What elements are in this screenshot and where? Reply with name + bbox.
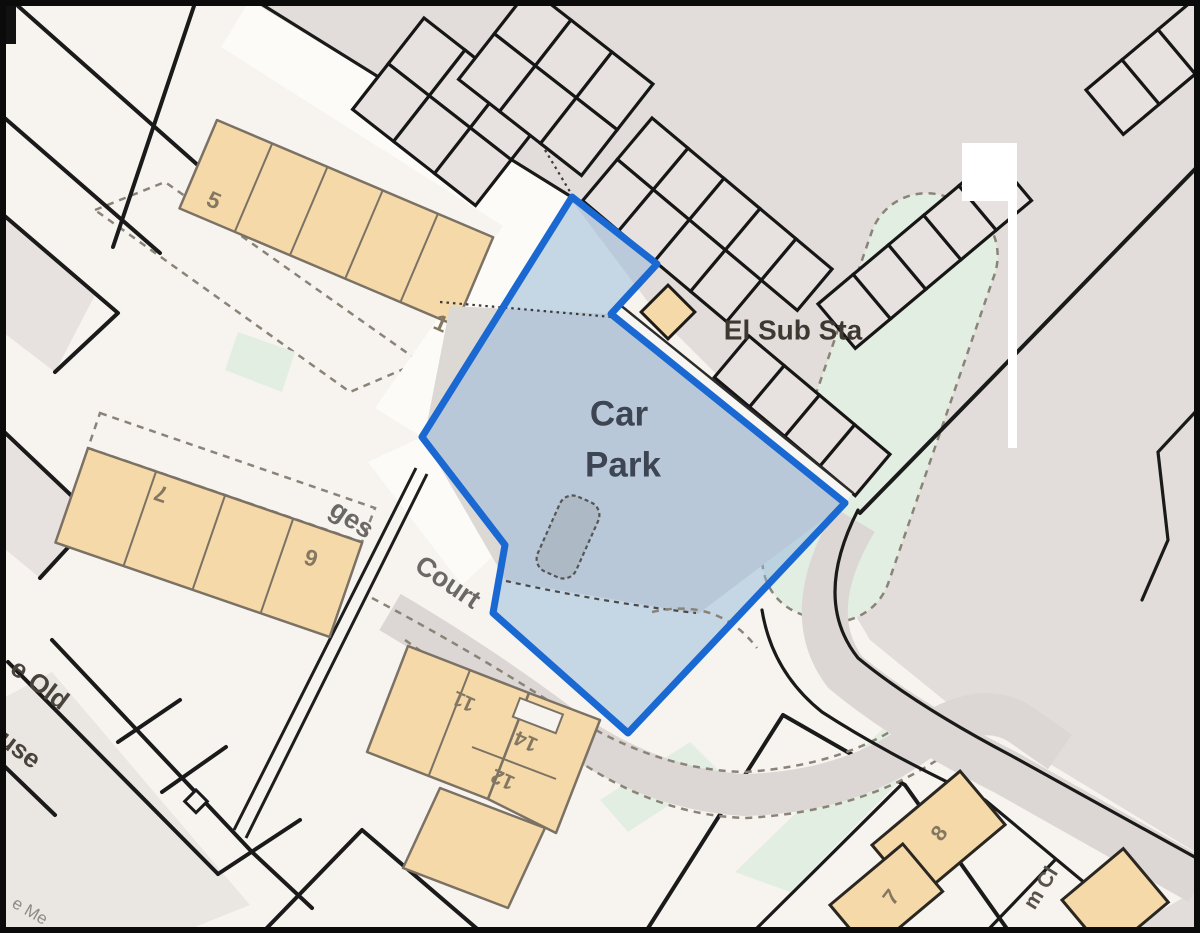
label-car-park-line-1: Car — [590, 395, 649, 434]
map-blank-2 — [1008, 143, 1017, 448]
map-canvas: CarParkEl Sub Sta517611141287Courtgese O… — [0, 0, 1200, 933]
map-blank-1 — [962, 143, 1008, 201]
label-el-sub-sta: El Sub Sta — [724, 315, 863, 346]
map-stage: CarParkEl Sub Sta517611141287Courtgese O… — [0, 0, 1200, 933]
label-car-park-line-2: Park — [585, 446, 661, 485]
